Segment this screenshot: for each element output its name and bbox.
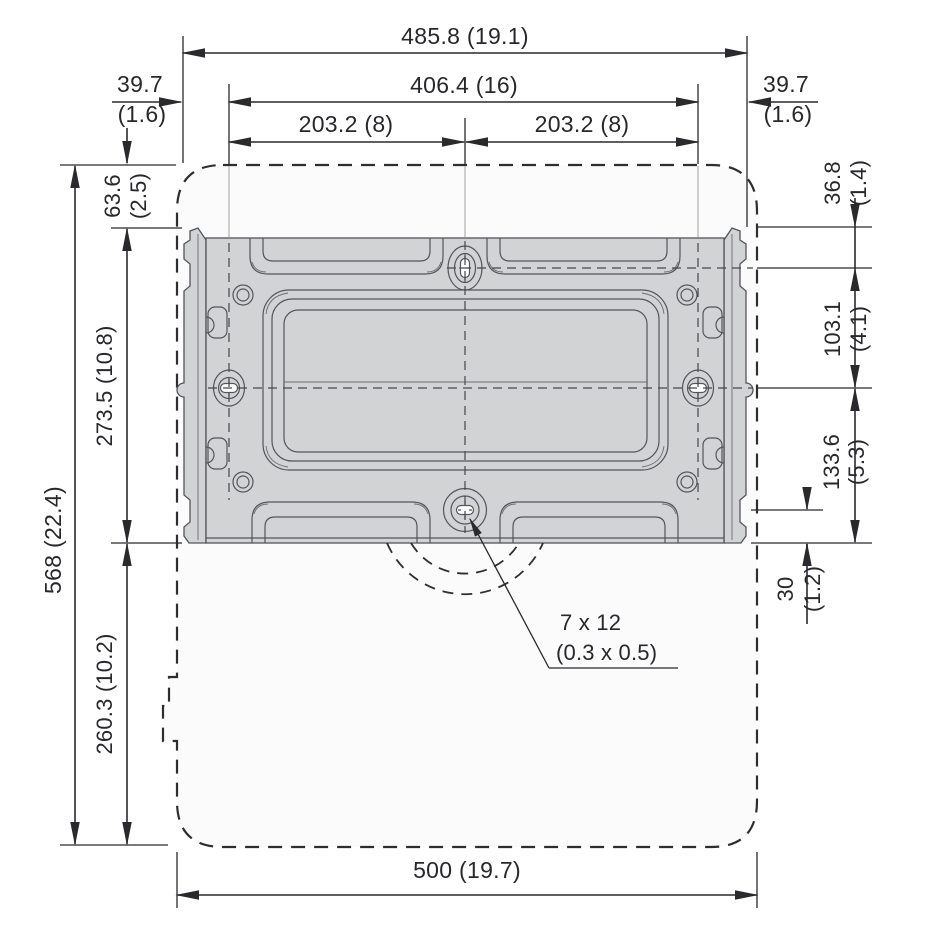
dim-overall-width-label: 485.8 (19.1) bbox=[401, 23, 529, 49]
dim-edge-offset-right-mm: 39.7 bbox=[763, 71, 809, 97]
dim-bracket-top-to-slot-mm: 36.8 bbox=[820, 161, 845, 205]
dim-half-span-left-label: 203.2 (8) bbox=[299, 111, 394, 137]
dim-edge-offset-left-mm: 39.7 bbox=[117, 71, 163, 97]
dim-bracket-top-to-slot: 36.8 (1.4) bbox=[820, 160, 871, 269]
dim-edge-offset-left: 39.7 (1.6) bbox=[112, 71, 181, 127]
dim-slot-to-keyhole-in: (4.1) bbox=[846, 306, 871, 352]
dim-bracket-height: 273.5 (10.8) bbox=[92, 229, 127, 542]
dim-top-to-bracket: 63.6 (2.5) bbox=[100, 128, 151, 219]
dim-keyhole-to-bracket-bottom-mm: 133.6 bbox=[819, 434, 844, 490]
dim-mount-hole-span: 406.4 (16) bbox=[229, 72, 698, 102]
dim-overall-height-label: 568 (22.4) bbox=[40, 486, 66, 594]
mounting-bracket bbox=[177, 228, 753, 543]
dim-half-span-right-label: 203.2 (8) bbox=[535, 111, 630, 137]
dim-edge-offset-right-in: (1.6) bbox=[764, 101, 813, 127]
dim-keyhole-to-bracket-bottom: 133.6 (5.3) bbox=[819, 389, 869, 542]
dim-overall-width-bottom-label: 500 (19.7) bbox=[413, 857, 521, 883]
dim-bracket-top-to-slot-in: (1.4) bbox=[846, 160, 871, 206]
dim-top-to-bracket-in: (2.5) bbox=[126, 173, 151, 219]
dim-slot-to-bracket-bottom-mm: 30 bbox=[773, 577, 798, 602]
dim-top-to-bracket-mm: 63.6 bbox=[100, 174, 125, 218]
dim-overall-height: 568 (22.4) bbox=[40, 166, 75, 844]
dim-overall-width: 485.8 (19.1) bbox=[183, 23, 747, 53]
dim-slot-to-keyhole: 103.1 (4.1) bbox=[820, 269, 871, 387]
dimension-drawing-canvas: 485.8 (19.1) 406.4 (16) 39.7 (1.6) 39.7 … bbox=[0, 0, 945, 935]
dim-slot-to-bracket-bottom-in: (1.2) bbox=[800, 566, 825, 612]
dim-half-span-right: 203.2 (8) bbox=[466, 111, 698, 142]
slot-callout-line1: 7 x 12 bbox=[560, 610, 621, 635]
slot-callout-line2: (0.3 x 0.5) bbox=[556, 640, 657, 665]
dim-bracket-to-bottom: 260.3 (10.2) bbox=[92, 544, 127, 844]
dim-bracket-to-bottom-label: 260.3 (10.2) bbox=[92, 633, 117, 754]
mounting-drawing: 485.8 (19.1) 406.4 (16) 39.7 (1.6) 39.7 … bbox=[0, 0, 945, 935]
dim-half-span-left: 203.2 (8) bbox=[229, 111, 464, 142]
dim-slot-to-keyhole-mm: 103.1 bbox=[820, 301, 845, 357]
dim-slot-to-bracket-bottom: 30 (1.2) bbox=[773, 489, 825, 624]
dim-edge-offset-right: 39.7 (1.6) bbox=[749, 71, 818, 127]
dim-overall-width-bottom: 500 (19.7) bbox=[177, 857, 757, 895]
dim-bracket-height-label: 273.5 (10.8) bbox=[92, 325, 117, 446]
dim-mount-hole-span-label: 406.4 (16) bbox=[410, 72, 518, 98]
dim-edge-offset-left-in: (1.6) bbox=[118, 101, 167, 127]
dim-keyhole-to-bracket-bottom-in: (5.3) bbox=[844, 439, 869, 485]
